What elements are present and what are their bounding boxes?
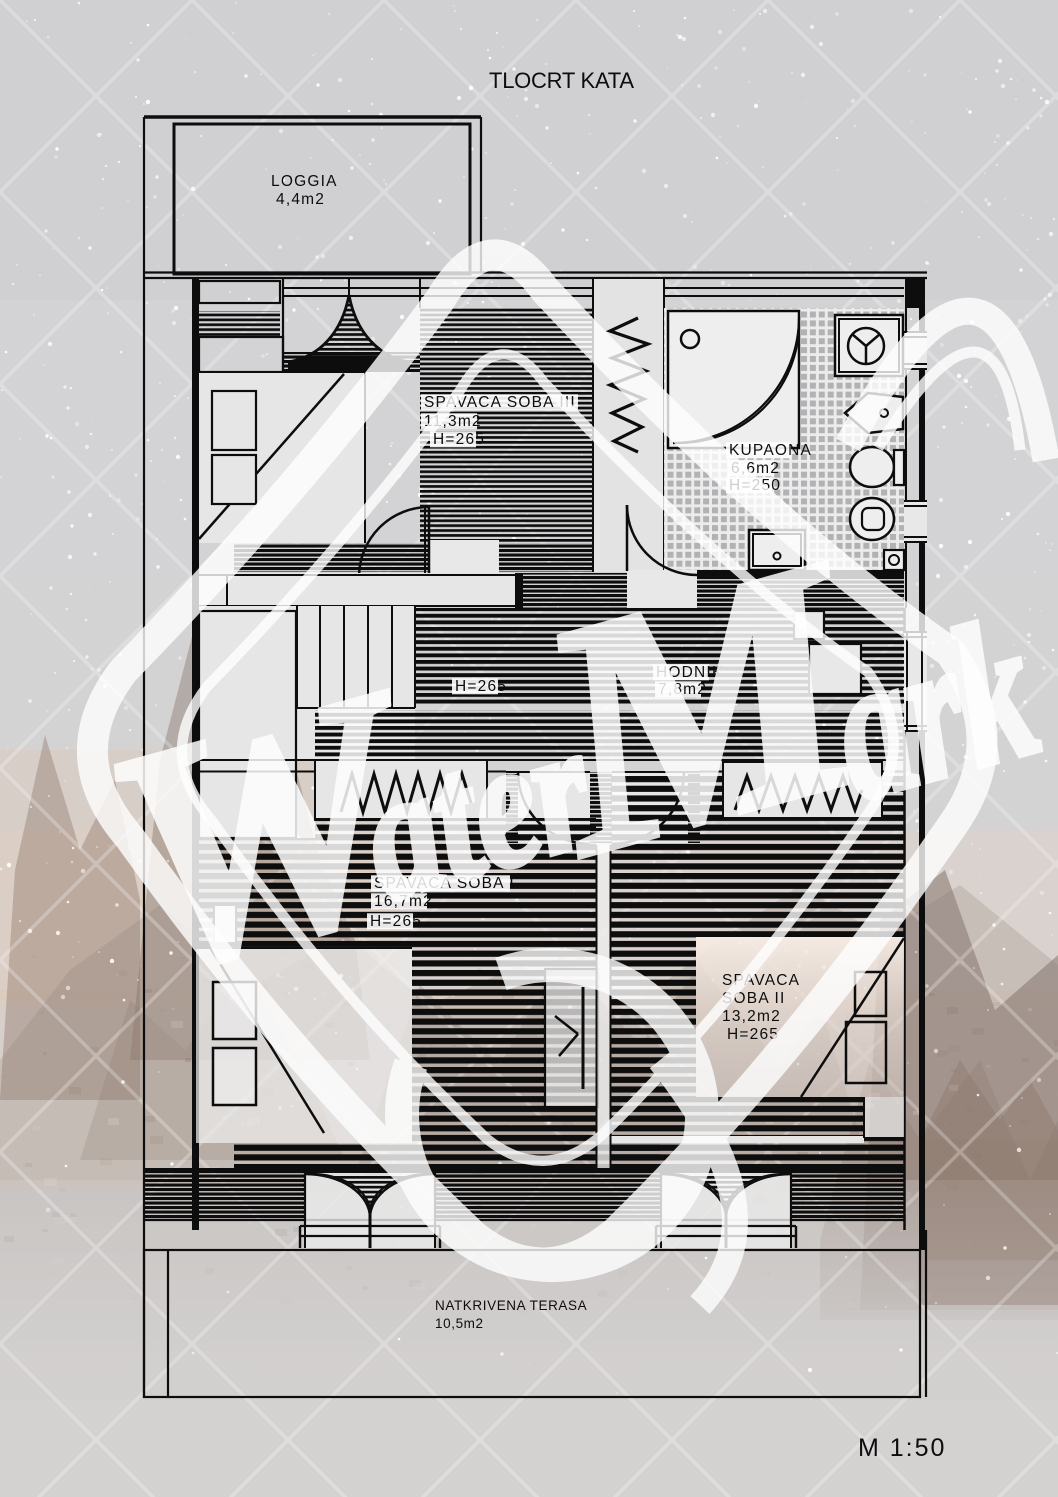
svg-text:H=265: H=265 (455, 678, 507, 695)
svg-text:NATKRIVENA TERASA: NATKRIVENA TERASA (435, 1298, 587, 1313)
svg-text:13,2m2: 13,2m2 (722, 1008, 781, 1025)
svg-text:M 1:50: M 1:50 (858, 1434, 946, 1462)
svg-text:LOGGIA: LOGGIA (271, 173, 338, 190)
svg-text:KUPAONA: KUPAONA (729, 442, 812, 459)
svg-text:TLOCRT KATA: TLOCRT KATA (489, 68, 637, 93)
svg-text:4,4m2: 4,4m2 (276, 191, 325, 208)
svg-text:H=265: H=265 (433, 431, 485, 448)
svg-text:10,5m2: 10,5m2 (435, 1316, 484, 1331)
